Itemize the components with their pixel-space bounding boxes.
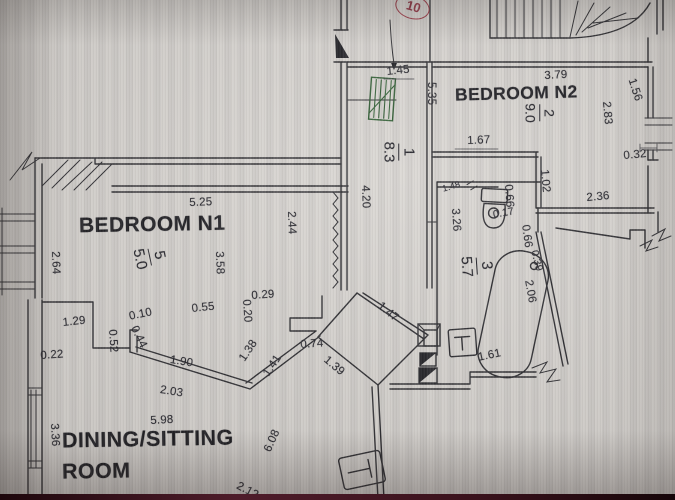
room-number: 1 xyxy=(401,148,416,156)
fraction-bar xyxy=(398,143,400,160)
floor-plan-content: 10 BEDROOM N1 BEDROOM N2 DINING/SITTING … xyxy=(0,0,675,500)
room-number: 2 xyxy=(542,109,556,117)
dimension-label: 0.74 xyxy=(300,337,324,351)
room-label-bedroom-n1: BEDROOM N1 xyxy=(79,212,226,239)
mid-right-walls xyxy=(556,212,658,248)
dimension-label: 1.67 xyxy=(467,134,491,147)
dimension-label: 3.26 xyxy=(449,208,463,232)
window-icon xyxy=(0,208,35,295)
sink-icon xyxy=(448,328,477,357)
room-area: 8.3 xyxy=(382,142,397,163)
radiator-icon xyxy=(369,77,396,121)
room-number-area-tag: 35.7 xyxy=(459,254,495,277)
dimension-label: 0.66 xyxy=(502,184,516,208)
dimension-label: 0.29 xyxy=(251,288,275,302)
window-icon xyxy=(28,388,42,468)
dimension-label: 2.64 xyxy=(49,251,62,275)
dimension-label: 4.20 xyxy=(359,185,372,209)
stairs-icon xyxy=(490,0,663,62)
dimension-label: 3.58 xyxy=(213,251,226,275)
dimension-label: 2.44 xyxy=(285,211,298,235)
room-label-dining-line2: ROOM xyxy=(62,458,131,484)
room-label-bedroom-n2: BEDROOM N2 xyxy=(455,81,578,105)
room-number-area-tag: 18.3 xyxy=(382,142,417,163)
dimension-label: 0.55 xyxy=(191,301,215,315)
dimension-label: 1.45 xyxy=(386,64,410,78)
dimension-label: 3.79 xyxy=(544,69,568,82)
floor-plan-drawing xyxy=(0,0,675,500)
partition-zigzag xyxy=(333,192,338,288)
dimension-label: 5.98 xyxy=(150,414,174,427)
room-number: 5 xyxy=(151,249,167,260)
dimension-label: 1.02 xyxy=(538,169,552,193)
sink-icon xyxy=(338,450,386,490)
room-label-dining-line1: DINING/SITTING xyxy=(62,426,234,454)
dimension-label: 0.20 xyxy=(240,299,254,323)
dimension-label: 1.29 xyxy=(62,315,86,329)
dimension-label: 0.52 xyxy=(106,329,120,353)
door-leaf-icon xyxy=(335,34,349,58)
dimension-label: 0.22 xyxy=(40,348,64,362)
fraction-bar xyxy=(539,105,541,122)
dimension-label: 0.32 xyxy=(623,148,647,162)
ventilation-shaft-icon xyxy=(419,353,437,383)
dimension-label: 2.83 xyxy=(600,101,614,125)
floor-plan-photo: 10 BEDROOM N1 BEDROOM N2 DINING/SITTING … xyxy=(0,0,675,500)
room-number: 3 xyxy=(479,261,495,270)
hall-walls xyxy=(318,293,428,500)
dimension-label: 5.35 xyxy=(425,82,437,105)
dimension-label: 3.36 xyxy=(48,423,61,447)
dimension-label: 2.36 xyxy=(586,190,610,204)
room-number-area-tag: 29.0 xyxy=(524,103,557,122)
room-area: 9.0 xyxy=(524,103,538,122)
room-area: 5.7 xyxy=(459,256,475,278)
dimension-label: 5.25 xyxy=(189,196,213,209)
